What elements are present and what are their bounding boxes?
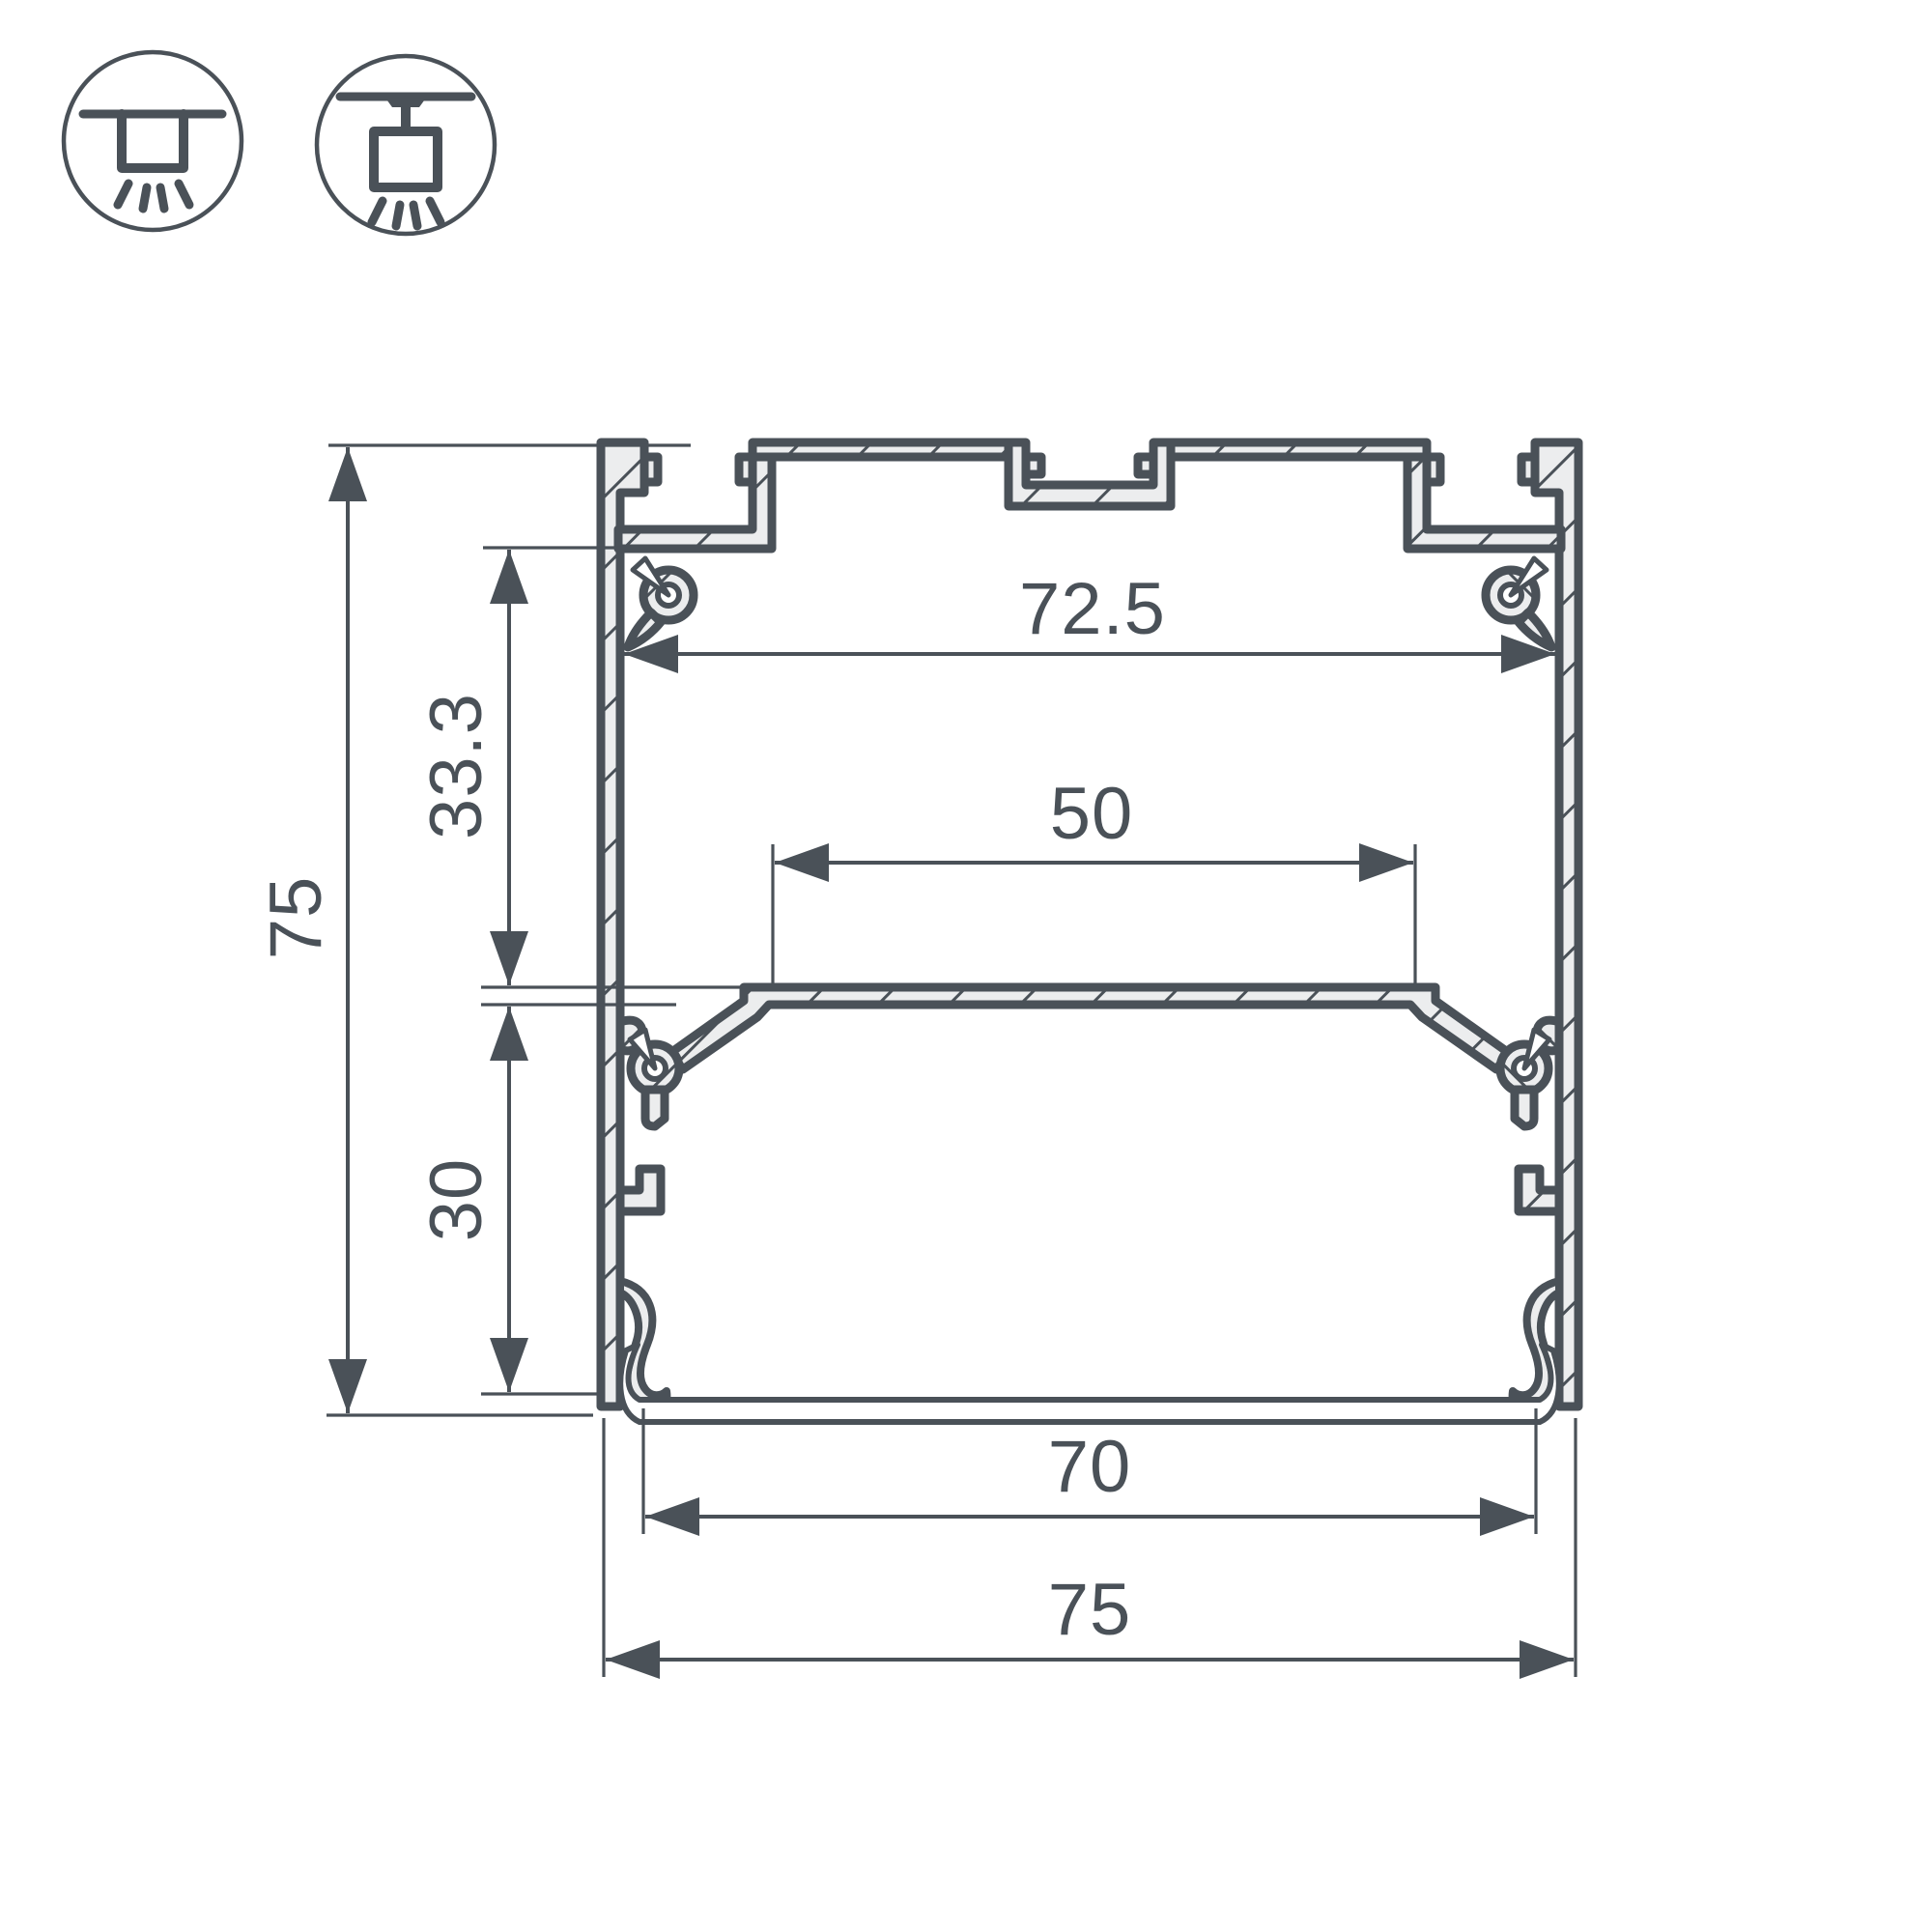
upper-screw-channel <box>1486 558 1551 647</box>
wall-hook <box>1519 1169 1559 1211</box>
dim-label-led-area-width: 50 <box>1050 773 1134 855</box>
dim-label-lower-inner-height: 30 <box>415 1158 497 1242</box>
mid-screw-boss <box>620 1020 679 1126</box>
top-plate-right <box>1171 442 1427 457</box>
center-channel-lip-left <box>1026 457 1041 474</box>
wall-hook <box>620 1169 661 1211</box>
mid-screw-boss <box>1500 1020 1559 1126</box>
dimension-annotations: 75 33.3 30 72.5 50 <box>255 445 1576 1677</box>
dimension-led-area-width: 50 <box>773 773 1415 983</box>
icon-circle <box>64 52 241 230</box>
dim-label-overall-width: 75 <box>1048 1569 1132 1651</box>
left-wall <box>601 442 644 1406</box>
led-shelf <box>670 987 1509 1069</box>
dim-label-inner-bottom-width: 70 <box>1048 1426 1132 1508</box>
center-channel-lip-right <box>1138 457 1153 474</box>
slot-finger <box>739 457 753 482</box>
drawing-page: 75 33.3 30 72.5 50 <box>0 0 1932 1932</box>
surface-mount-icon <box>317 56 495 234</box>
dimension-inner-bottom-width: 70 <box>643 1408 1536 1534</box>
slot-finger <box>644 457 658 482</box>
diffuser-cover <box>620 1345 1559 1422</box>
technical-drawing: 75 33.3 30 72.5 50 <box>0 0 1932 1932</box>
dimension-overall-height: 75 <box>255 445 691 1415</box>
slot-finger <box>1427 457 1440 482</box>
dimension-upper-inner-height: 33.3 <box>415 548 746 987</box>
profile-box <box>374 131 438 187</box>
dim-label-overall-height: 75 <box>255 876 337 960</box>
icon-circle <box>317 56 495 234</box>
recessed-mount-icon <box>64 52 241 230</box>
profile-box <box>122 114 184 168</box>
upper-screw-channel <box>628 558 694 647</box>
top-plate-left <box>753 442 1009 457</box>
dimension-inner-top-width: 72.5 <box>624 568 1555 654</box>
light-rays <box>118 184 189 209</box>
light-rays <box>372 201 440 226</box>
dim-label-inner-top-width: 72.5 <box>1019 568 1166 650</box>
slot-finger <box>1521 457 1535 482</box>
dim-label-upper-inner-height: 33.3 <box>415 693 497 839</box>
right-wall <box>1535 442 1578 1406</box>
